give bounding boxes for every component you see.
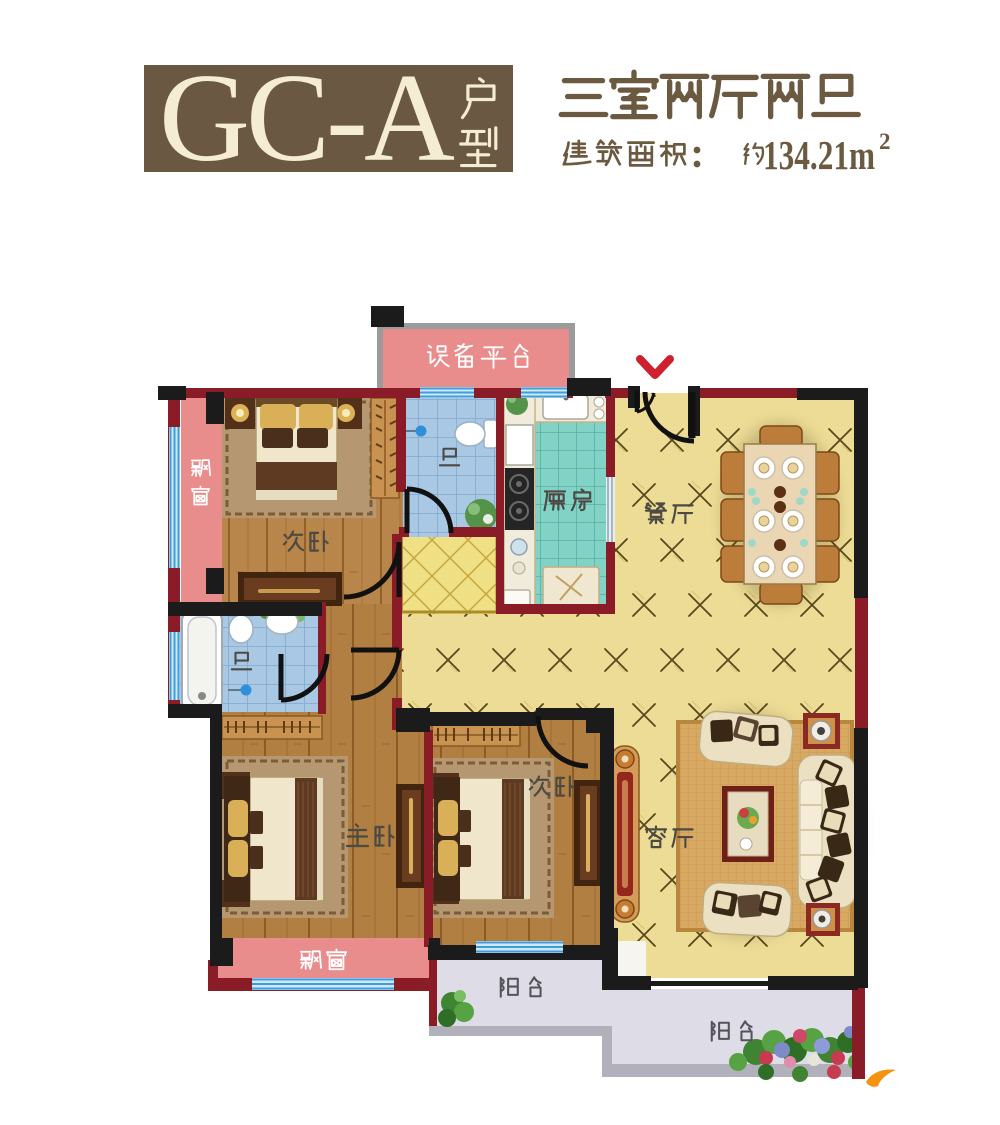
svg-text:2: 2 xyxy=(879,129,891,154)
svg-text:GC-A: GC-A xyxy=(159,49,455,188)
svg-text:134.21m: 134.21m xyxy=(763,132,875,178)
